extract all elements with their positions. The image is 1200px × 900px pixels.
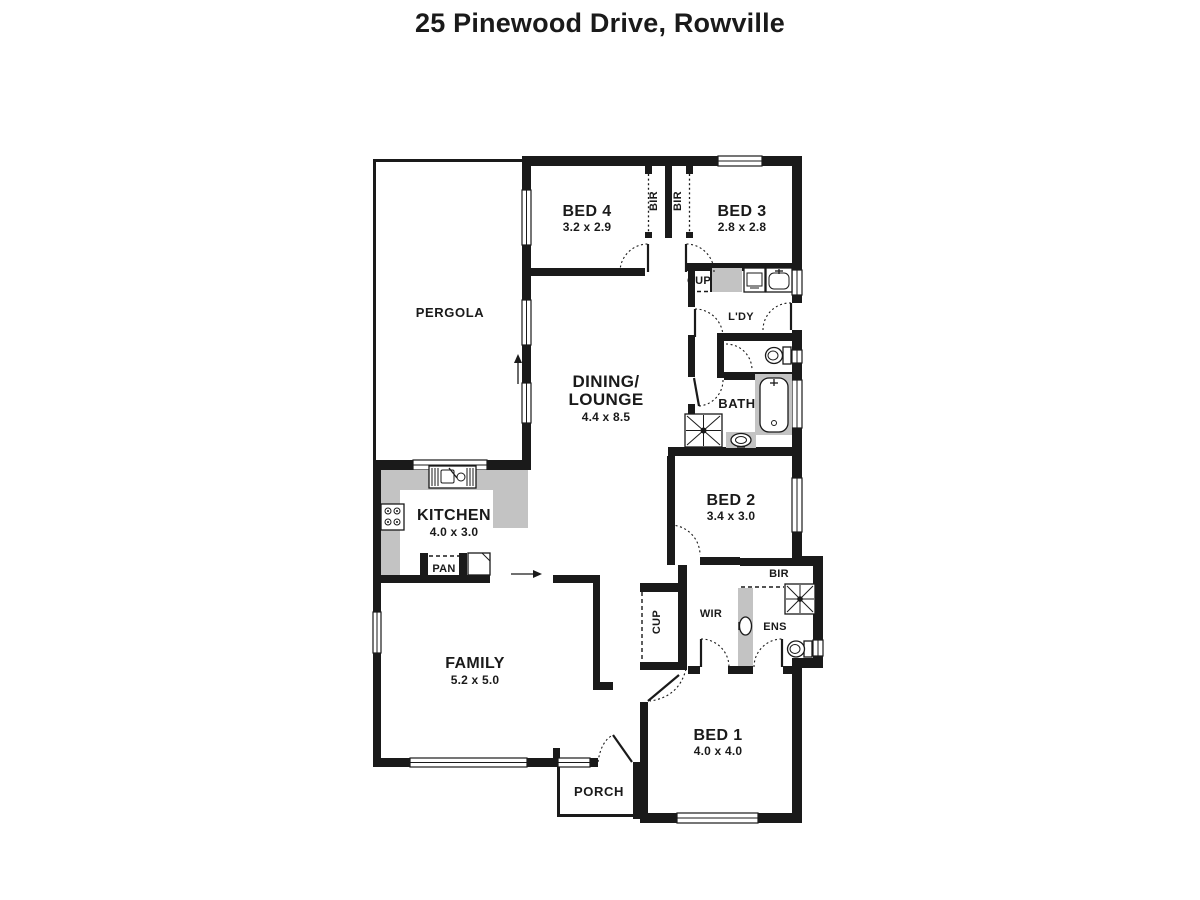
window-family-south — [410, 758, 527, 767]
door-ens — [754, 639, 782, 667]
label-wir: WIR — [700, 608, 722, 620]
window-laundry-east — [792, 270, 802, 295]
kitchen-sink-icon — [429, 466, 476, 488]
dims-kitchen: 4.0 x 3.0 — [430, 525, 479, 539]
basin-ens-icon — [739, 617, 752, 635]
label-bed2: BED 2 — [706, 492, 755, 509]
label-laundry: L'DY — [728, 311, 754, 323]
entry-arrow-pergola — [514, 354, 522, 384]
window-bed1-south — [677, 813, 758, 823]
label-bed3: BED 3 — [717, 203, 766, 220]
label-bed4: BED 4 — [562, 203, 611, 220]
label-pergola: PERGOLA — [416, 305, 484, 320]
label-family: FAMILY — [445, 655, 505, 672]
door-bed4 — [620, 244, 648, 272]
kitchen-bench-right — [493, 490, 528, 528]
dims-bed4: 3.2 x 2.9 — [563, 220, 612, 234]
laundry-trough-icon — [744, 268, 765, 292]
stove-icon — [381, 504, 404, 530]
window-dining-west — [522, 300, 531, 345]
door-wir — [701, 639, 729, 667]
window-family-south-2 — [558, 758, 590, 767]
label-bir-bed3: BIR — [672, 191, 684, 211]
window-bed4-west — [522, 190, 531, 245]
door-laundry — [695, 309, 723, 337]
shower-ens-icon — [785, 584, 815, 614]
door-wc — [726, 344, 752, 370]
door-dining-pergola — [522, 383, 531, 423]
label-bed1: BED 1 — [693, 727, 742, 744]
label-ensuite: ENS — [763, 621, 787, 633]
window-ens-east — [813, 640, 823, 656]
window-wc-east — [792, 350, 802, 363]
window-bed2-east — [792, 478, 802, 532]
label-dining-1: DINING/ — [572, 372, 639, 391]
window-bed3-top — [718, 156, 762, 166]
floor-plan-page: 25 Pinewood Drive, Rowville — [0, 0, 1200, 900]
label-bir-bed2: BIR — [769, 568, 789, 580]
entry-arrow-family — [511, 570, 542, 578]
shower-bath-icon — [685, 414, 722, 447]
window-family-west — [373, 612, 381, 653]
door-bed1 — [648, 669, 686, 701]
plan-title: 25 Pinewood Drive, Rowville — [415, 8, 785, 38]
dims-bed2: 3.4 x 3.0 — [707, 509, 756, 523]
label-kitchen: KITCHEN — [417, 507, 491, 524]
label-bath: BATH — [718, 396, 756, 411]
floor-plan: 25 Pinewood Drive, Rowville — [0, 0, 1200, 900]
laundry-sink-icon — [766, 268, 792, 292]
kitchen-bench-left — [381, 490, 400, 575]
label-dining-2: LOUNGE — [568, 390, 643, 409]
laundry-bench — [712, 268, 742, 292]
label-cup-entry: CUP — [651, 610, 663, 634]
dims-bed3: 2.8 x 2.8 — [718, 220, 767, 234]
label-porch: PORCH — [574, 784, 624, 799]
label-pantry: PAN — [432, 563, 455, 575]
basin-bath-icon — [731, 434, 751, 448]
toilet-wc-icon — [766, 347, 792, 364]
toilet-ens-icon — [788, 641, 813, 657]
door-entry — [598, 735, 632, 762]
label-bir-bed4: BIR — [648, 191, 660, 211]
bathtub-icon — [760, 378, 788, 432]
dims-family: 5.2 x 5.0 — [451, 673, 500, 687]
window-bath-east — [792, 380, 802, 428]
label-cup-hall: CUP — [687, 275, 711, 287]
door-bed2 — [671, 525, 700, 555]
dims-bed1: 4.0 x 4.0 — [694, 744, 743, 758]
doors — [598, 244, 791, 762]
dims-dining: 4.4 x 8.5 — [582, 410, 631, 424]
fridge-icon — [468, 553, 490, 575]
door-laundry-external — [763, 303, 791, 330]
